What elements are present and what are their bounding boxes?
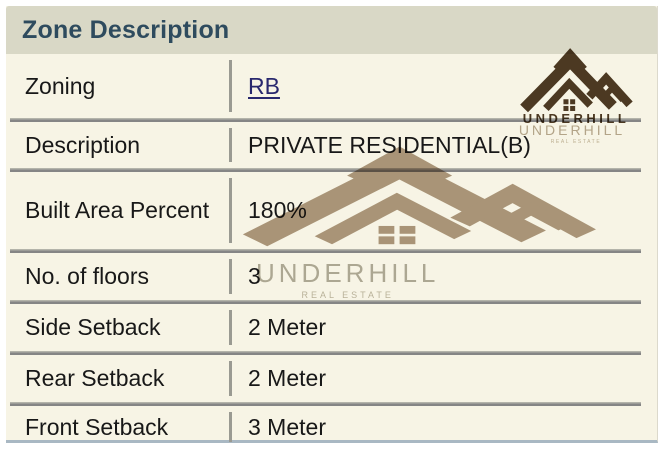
table-row: Rear Setback 2 Meter bbox=[6, 355, 657, 402]
card-header: Zone Description bbox=[6, 6, 657, 54]
zone-description-card: Zone Description Zoning RB Description P… bbox=[6, 6, 658, 443]
row-label-description: Description bbox=[6, 130, 229, 160]
row-value-built-area-percent: 180% bbox=[232, 197, 657, 224]
row-label-rear-setback: Rear Setback bbox=[6, 363, 229, 393]
table-row: Front Setback 3 Meter bbox=[6, 406, 657, 448]
page-title: Zone Description bbox=[6, 16, 229, 45]
table-row: Zoning RB bbox=[6, 54, 657, 118]
row-value-front-setback: 3 Meter bbox=[232, 414, 657, 441]
row-label-front-setback: Front Setback bbox=[6, 412, 229, 442]
row-label-built-area-percent: Built Area Percent bbox=[6, 195, 229, 225]
row-value-rear-setback: 2 Meter bbox=[232, 365, 657, 392]
zoning-value-link[interactable]: RB bbox=[248, 73, 280, 99]
row-label-side-setback: Side Setback bbox=[6, 312, 229, 342]
row-label-no-of-floors: No. of floors bbox=[6, 261, 229, 291]
screenshot-root: Zone Description Zoning RB Description P… bbox=[0, 0, 668, 452]
table-row: Description PRIVATE RESIDENTIAL(B) bbox=[6, 122, 657, 168]
row-value-description: PRIVATE RESIDENTIAL(B) bbox=[232, 132, 657, 159]
row-value-no-of-floors: 3 bbox=[232, 263, 657, 290]
table-row: Built Area Percent 180% bbox=[6, 172, 657, 249]
table-row: Side Setback 2 Meter bbox=[6, 304, 657, 351]
row-value-side-setback: 2 Meter bbox=[232, 314, 657, 341]
row-label-zoning: Zoning bbox=[6, 71, 229, 101]
table-row: No. of floors 3 bbox=[6, 253, 657, 300]
